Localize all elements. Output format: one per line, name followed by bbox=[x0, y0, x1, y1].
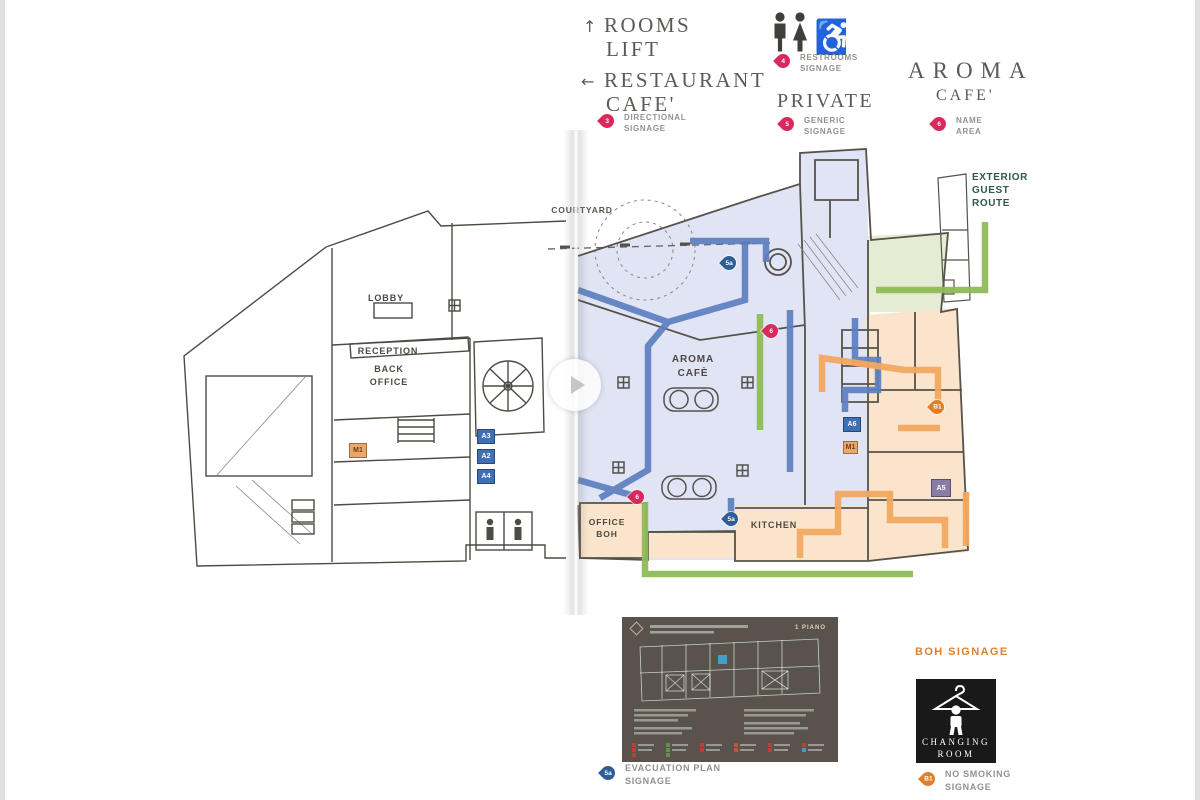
boh-signage-label: BOH SIGNAGE bbox=[915, 646, 1009, 658]
changing-room-text-1: CHANGING bbox=[916, 737, 996, 747]
evac-logo bbox=[630, 622, 643, 635]
flipbook-spread: { "legend": { "rooms_lift": { "arrow": "… bbox=[0, 0, 1200, 800]
room-label-reception: RECEPTION bbox=[358, 346, 419, 356]
evacuation-plan-panel: 1 PIANO bbox=[622, 617, 838, 762]
floor-plan-svg bbox=[0, 0, 1200, 800]
room-label-boh: BOH bbox=[596, 529, 618, 539]
room-label-aroma-cafe: CAFÈ bbox=[678, 368, 709, 379]
plan-tag-a6: A6 bbox=[843, 417, 861, 432]
room-label-lobby: LOBBY bbox=[368, 293, 404, 303]
room-label-back-office: OFFICE bbox=[370, 377, 408, 387]
room-label-office: OFFICE bbox=[589, 517, 626, 527]
evac-header-textbars bbox=[650, 625, 748, 634]
room-label-back: BACK bbox=[374, 364, 404, 374]
plan-tag-a5: A5 bbox=[931, 479, 951, 497]
plan-tag-m1-right: M1 bbox=[843, 441, 858, 454]
evac-panel-graphics bbox=[622, 617, 838, 762]
plan-tag-m1-left: M1 bbox=[349, 443, 367, 458]
changing-room-sign: CHANGING ROOM bbox=[916, 679, 996, 763]
page-flip-button[interactable] bbox=[549, 359, 601, 411]
evac-body-textbars bbox=[634, 709, 814, 735]
room-label-kitchen: KITCHEN bbox=[751, 520, 797, 530]
no-smoking-caption-2: SIGNAGE bbox=[945, 782, 991, 793]
play-arrow-icon bbox=[571, 376, 585, 394]
evac-legend-row bbox=[632, 743, 824, 757]
left-building bbox=[184, 211, 566, 566]
evacuation-caption-1: EVACUATION PLAN bbox=[625, 763, 721, 774]
plan-tag-a4: A4 bbox=[477, 469, 495, 484]
evacuation-caption-2: SIGNAGE bbox=[625, 776, 671, 787]
person-icon bbox=[950, 705, 963, 735]
changing-room-text-2: ROOM bbox=[916, 749, 996, 759]
plan-tag-a3: A3 bbox=[477, 429, 495, 444]
evac-floor-label: 1 PIANO bbox=[795, 625, 826, 631]
plan-tag-a2: A2 bbox=[477, 449, 495, 464]
no-smoking-caption-1: NO SMOKING bbox=[945, 769, 1011, 780]
evac-mini-plan bbox=[640, 639, 820, 701]
changing-room-icons bbox=[916, 679, 996, 735]
room-label-aroma: AROMA bbox=[672, 354, 714, 365]
